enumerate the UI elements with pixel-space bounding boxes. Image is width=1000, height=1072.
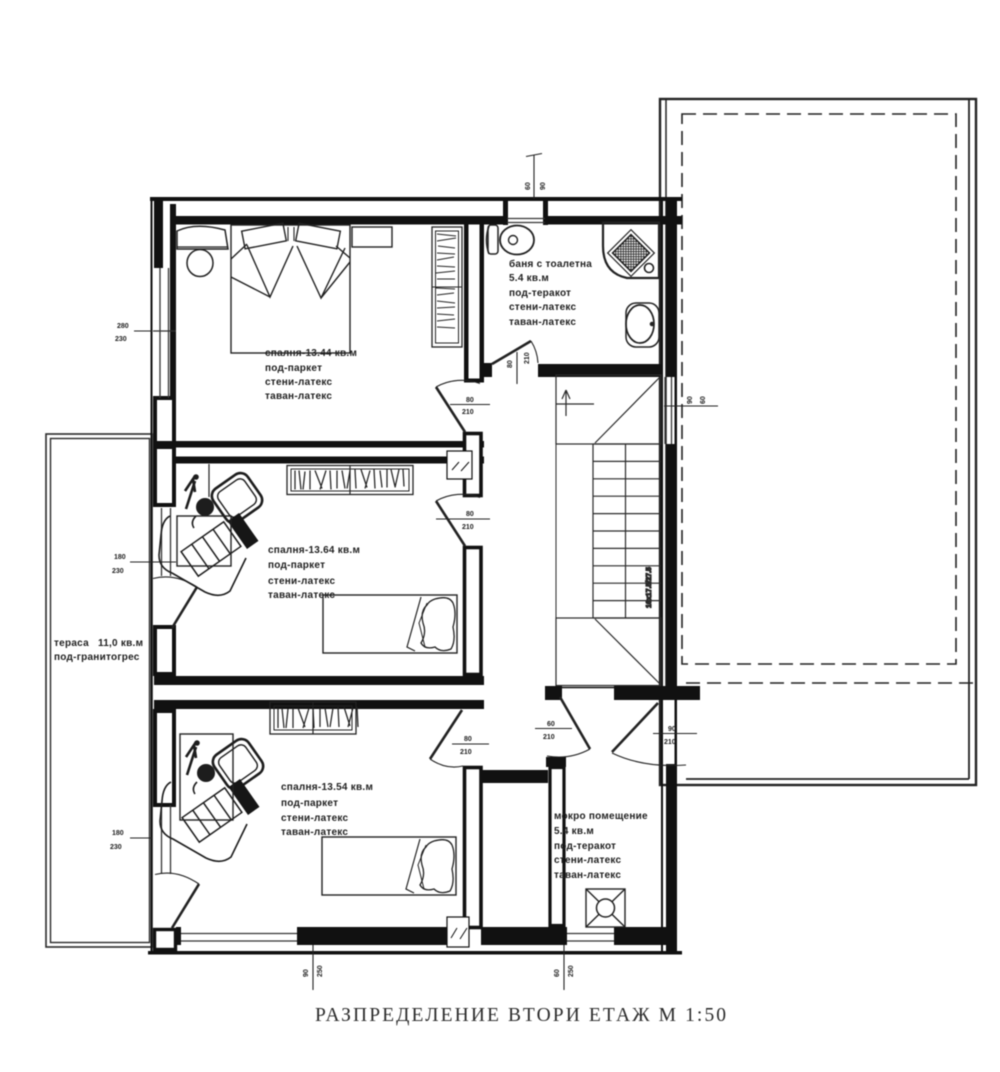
svg-text:спалня-13.44 кв.м: спалня-13.44 кв.м	[265, 348, 357, 359]
svg-text:180: 180	[112, 830, 124, 837]
svg-text:230: 230	[112, 568, 124, 575]
svg-text:спалня-13.54 кв.м: спалня-13.54 кв.м	[281, 782, 373, 793]
svg-text:80: 80	[464, 736, 472, 743]
svg-text:стени-латекс: стени-латекс	[281, 813, 349, 824]
svg-text:стени-латекс: стени-латекс	[265, 377, 333, 388]
svg-text:таван-латекс: таван-латекс	[281, 827, 348, 838]
svg-text:под-паркет: под-паркет	[281, 798, 338, 809]
svg-text:230: 230	[110, 844, 122, 851]
svg-text:210: 210	[543, 734, 555, 741]
svg-text:мокро помещение: мокро помещение	[554, 811, 648, 822]
svg-text:90: 90	[540, 182, 547, 190]
svg-text:210: 210	[664, 739, 676, 746]
svg-text:16x17.5/27.5: 16x17.5/27.5	[646, 567, 653, 608]
svg-text:спалня-13.64 кв.м: спалня-13.64 кв.м	[268, 545, 360, 556]
svg-text:60: 60	[525, 182, 532, 190]
svg-text:таван-латекс: таван-латекс	[265, 391, 332, 402]
svg-text:таван-латекс: таван-латекс	[509, 317, 576, 328]
svg-text:5.4 кв.м: 5.4 кв.м	[554, 826, 594, 837]
svg-text:60: 60	[554, 969, 561, 977]
svg-text:210: 210	[462, 409, 474, 416]
svg-text:РАЗПРЕДЕЛЕНИЕ ВТОРИ ЕТАЖ М 1: РАЗПРЕДЕЛЕНИЕ ВТОРИ ЕТАЖ М 1:50	[315, 1005, 728, 1026]
svg-text:210: 210	[524, 352, 531, 364]
svg-text:180: 180	[114, 554, 126, 561]
svg-text:230: 230	[115, 336, 127, 343]
svg-text:280: 280	[117, 323, 129, 330]
svg-text:210: 210	[460, 749, 472, 756]
svg-text:стени-латекс: стени-латекс	[268, 576, 336, 587]
svg-text:баня с тоалетна: баня с тоалетна	[509, 258, 592, 270]
svg-text:стени-латекс: стени-латекс	[554, 855, 622, 866]
svg-text:5.4 кв.м: 5.4 кв.м	[509, 273, 549, 284]
svg-text:90: 90	[687, 396, 694, 404]
svg-text:таван-латекс: таван-латекс	[268, 590, 335, 601]
svg-text:80: 80	[466, 511, 474, 518]
svg-text:под-гранитогрес: под-гранитогрес	[54, 652, 140, 663]
svg-text:250: 250	[568, 965, 575, 977]
svg-text:под-теракот: под-теракот	[509, 288, 571, 299]
svg-text:60: 60	[547, 721, 555, 728]
svg-text:80: 80	[507, 360, 514, 368]
svg-text:80: 80	[466, 397, 474, 404]
svg-text:90: 90	[668, 726, 676, 733]
svg-text:250: 250	[317, 965, 324, 977]
svg-text:стени-латекс: стени-латекс	[509, 302, 577, 313]
svg-text:60: 60	[700, 396, 707, 404]
svg-text:210: 210	[462, 524, 474, 531]
svg-text:таван-латекс: таван-латекс	[554, 870, 621, 881]
svg-text:под-паркет: под-паркет	[268, 560, 325, 571]
svg-text:тераса 11,0 кв.м: тераса 11,0 кв.м	[54, 638, 143, 649]
svg-text:90: 90	[303, 969, 310, 977]
svg-text:под-паркет: под-паркет	[265, 363, 322, 374]
svg-text:под-теракот: под-теракот	[554, 841, 616, 852]
